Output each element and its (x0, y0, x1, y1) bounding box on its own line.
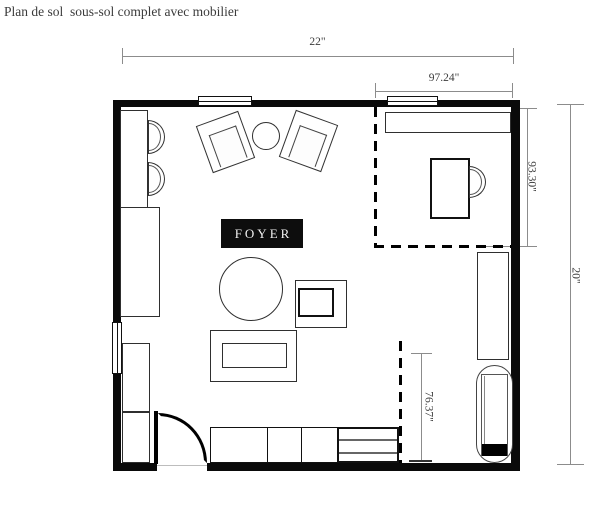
dimension-label-office-depth: 93.30" (525, 154, 538, 200)
plan-title: Plan de sol sous-sol complet avec mobili… (4, 4, 238, 20)
window-top-left (198, 96, 252, 106)
stair-tread (339, 439, 397, 441)
dimension-line-overall-width (122, 56, 513, 57)
round-table (219, 257, 283, 321)
desk-chair (469, 166, 486, 198)
sofa-cushion (222, 343, 287, 368)
stool-chair-2 (148, 162, 165, 196)
floor-plan: Plan de sol sous-sol complet avec mobili… (0, 0, 612, 505)
dimension-tick (513, 48, 514, 64)
dimension-tick (409, 460, 432, 462)
wall-top (113, 100, 520, 107)
dimension-label-overall-depth: 20" (569, 261, 582, 291)
wall-bottom-left (113, 463, 157, 471)
dimension-label-overall-width: 22" (122, 36, 513, 49)
dimension-tick (557, 464, 584, 465)
window-left (112, 322, 122, 374)
stool-chair-1 (148, 120, 165, 154)
side-table-round (252, 122, 280, 150)
end-table-inner (298, 288, 334, 317)
cabinet-right-tall (477, 252, 509, 360)
dimension-label-office-width: 97.24" (375, 72, 513, 85)
lounge-black-band (482, 444, 507, 456)
cabinet-left-bottom (122, 412, 150, 463)
lounge-inner-line (484, 376, 485, 454)
bottom-cabinet-2 (267, 427, 302, 463)
office-boundary-dashed-vertical (374, 107, 377, 247)
dimension-tick (122, 48, 123, 64)
window-top-right (387, 96, 438, 106)
counter-left-top (120, 110, 148, 208)
wall-bottom (207, 463, 520, 471)
door-threshold (157, 465, 207, 466)
bottom-cabinet-3 (301, 427, 338, 463)
door-swing-arc (158, 413, 207, 463)
bottom-cabinet-1 (210, 427, 268, 463)
stairs (337, 427, 399, 463)
office-boundary-dashed-horizontal (374, 245, 511, 248)
cabinet-left-lower (122, 343, 150, 412)
armchair-right (279, 110, 338, 172)
armchair-left (196, 111, 255, 173)
stair-tread (339, 452, 397, 454)
desk (430, 158, 470, 219)
cabinet-left-middle (120, 207, 160, 317)
dimension-tick (375, 83, 376, 98)
dimension-label-right-segment: 76.37" (422, 384, 435, 430)
dimension-tick (557, 104, 584, 105)
credenza (385, 112, 511, 133)
dimension-tick (512, 83, 513, 98)
dimension-line-office-width (375, 91, 513, 92)
dimension-tick (411, 353, 432, 354)
partition-dashed-vertical (399, 341, 402, 463)
room-label-foyer: FOYER (221, 219, 303, 248)
